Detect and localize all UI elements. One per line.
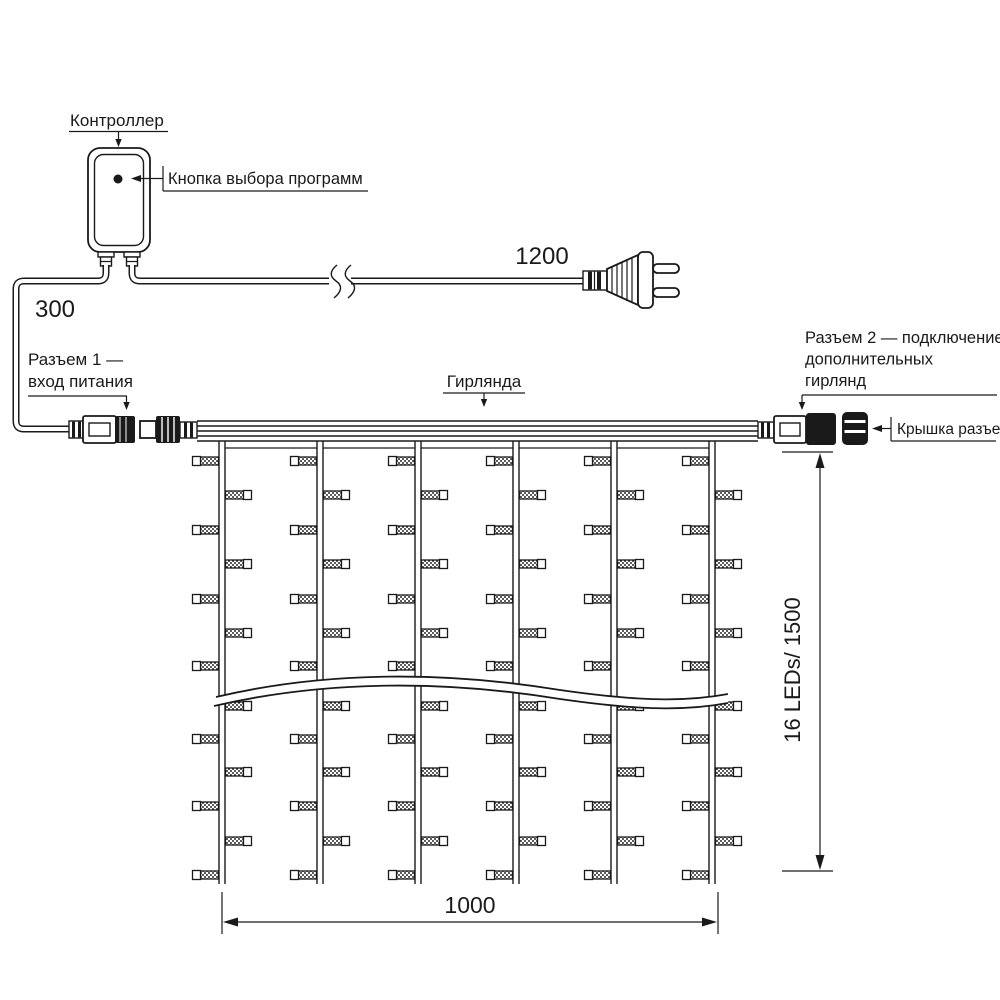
led-lamp-cap	[389, 735, 397, 744]
controller-box	[88, 148, 150, 266]
led-lamp-body	[495, 871, 513, 879]
led-lamp-body	[593, 735, 611, 743]
led-lamp-cap	[193, 595, 201, 604]
controller-stub-left	[98, 252, 114, 266]
led-lamp-cap	[734, 560, 742, 569]
controller-cord-length-label: 300	[35, 296, 75, 323]
led-lamp-cap	[683, 526, 691, 535]
width-dimension: 1000	[222, 892, 718, 934]
led-lamp-body	[691, 457, 709, 465]
led-lamp-body	[397, 595, 415, 603]
led-lamp-body	[226, 837, 244, 845]
led-lamp-body	[422, 768, 440, 776]
led-lamp-cap	[734, 702, 742, 711]
power-plug	[583, 252, 679, 308]
led-lamp-cap	[538, 629, 546, 638]
plug-body	[607, 255, 638, 305]
led-lamp-body	[618, 560, 636, 568]
led-lamp-cap	[244, 560, 252, 569]
led-lamp-cap	[538, 768, 546, 777]
led-lamp-body	[495, 735, 513, 743]
led-lamp-cap	[585, 595, 593, 604]
width-dimension-value: 1000	[444, 892, 495, 918]
garland-wire-bundle	[197, 421, 758, 441]
led-lamp-cap	[487, 871, 495, 880]
led-lamp-body	[226, 768, 244, 776]
connector-cap-label-text: Крышка разъема	[897, 421, 1000, 438]
led-lamp-body	[397, 735, 415, 743]
led-lamp-body	[716, 768, 734, 776]
led-lamp-body	[226, 629, 244, 637]
connector2-label-line3: гирлянд	[805, 372, 867, 390]
led-lamp-cap	[538, 560, 546, 569]
led-lamp-cap	[734, 837, 742, 846]
led-lamp-cap	[683, 871, 691, 880]
led-lamp-body	[691, 735, 709, 743]
led-lamp-body	[520, 491, 538, 499]
led-lamp-cap	[487, 457, 495, 466]
led-lamp-cap	[389, 457, 397, 466]
led-lamp-body	[422, 560, 440, 568]
cord-break-mark	[331, 265, 354, 298]
led-lamp-body	[201, 526, 219, 534]
led-lamp-cap	[440, 702, 448, 711]
led-lamp-body	[324, 837, 342, 845]
led-lamp-cap	[389, 526, 397, 535]
connector2	[758, 413, 836, 445]
led-lamp-cap	[193, 526, 201, 535]
led-lamp-cap	[585, 526, 593, 535]
led-lamp-cap	[636, 768, 644, 777]
led-lamp-body	[691, 595, 709, 603]
led-lamp-body	[593, 526, 611, 534]
connector1-female	[140, 416, 197, 443]
led-lamp-cap	[291, 871, 299, 880]
plug-face	[638, 252, 653, 308]
led-lamp-body	[691, 802, 709, 810]
led-lamp-body	[299, 871, 317, 879]
program-button-label-text: Кнопка выбора программ	[168, 170, 363, 188]
led-lamp-cap	[440, 837, 448, 846]
led-lamp-cap	[244, 837, 252, 846]
led-lamp-body	[495, 802, 513, 810]
connector1-label-line1: Разъем 1 —	[28, 350, 123, 369]
led-lamp-body	[618, 491, 636, 499]
led-lamp-body	[299, 735, 317, 743]
led-lamp-cap	[487, 595, 495, 604]
led-lamp-cap	[244, 702, 252, 711]
led-lamp-body	[520, 837, 538, 845]
led-lamp-body	[422, 702, 440, 710]
led-lamp-cap	[389, 662, 397, 671]
garland-diagram: 1000 16 LEDs/ 1500 Контроллер Кнопка выб…	[0, 0, 1000, 1000]
led-lamp-body	[495, 595, 513, 603]
controller-stub-right	[124, 252, 140, 266]
led-lamp-cap	[291, 595, 299, 604]
led-lamp-cap	[440, 560, 448, 569]
led-lamp-cap	[636, 837, 644, 846]
led-lamp-cap	[342, 560, 350, 569]
led-lamp-cap	[538, 491, 546, 500]
controller-to-connector1-wire	[16, 265, 106, 429]
led-lamp-body	[520, 768, 538, 776]
led-lamp-cap	[636, 629, 644, 638]
curtain-break-wave	[214, 677, 728, 709]
led-lamp-cap	[683, 595, 691, 604]
led-lamp-cap	[389, 871, 397, 880]
connector1-label-line2: вход питания	[28, 372, 133, 391]
led-lamp-body	[422, 837, 440, 845]
led-lamp-body	[299, 662, 317, 670]
led-lamp-cap	[440, 491, 448, 500]
led-lamp-cap	[342, 629, 350, 638]
led-lamp-body	[495, 457, 513, 465]
led-lamp-body	[324, 768, 342, 776]
plug-prong-bottom	[653, 288, 679, 297]
led-lamp-cap	[291, 526, 299, 535]
led-lamp-body	[324, 560, 342, 568]
height-dimension: 16 LEDs/ 1500	[780, 452, 833, 871]
connector2-cap	[842, 412, 868, 445]
led-lamp-body	[324, 629, 342, 637]
height-dimension-value: 16 LEDs/ 1500	[780, 597, 805, 743]
led-lamp-cap	[538, 837, 546, 846]
led-lamp-body	[716, 560, 734, 568]
led-lamp-body	[397, 802, 415, 810]
led-lamp-cap	[291, 457, 299, 466]
led-lamp-body	[593, 595, 611, 603]
led-lamp-cap	[440, 768, 448, 777]
led-lamp-body	[520, 629, 538, 637]
led-lamp-cap	[734, 768, 742, 777]
led-lamp-body	[593, 802, 611, 810]
led-lamp-body	[299, 802, 317, 810]
diagram-canvas: 1000 16 LEDs/ 1500 Контроллер Кнопка выб…	[0, 0, 1000, 1000]
led-lamp-body	[397, 871, 415, 879]
led-lamp-body	[495, 526, 513, 534]
connector1-male	[69, 416, 135, 443]
led-lamp-cap	[244, 629, 252, 638]
plug-prong-top	[653, 264, 679, 273]
led-lamp-body	[520, 702, 538, 710]
led-lamp-cap	[538, 702, 546, 711]
led-lamp-body	[201, 457, 219, 465]
led-lamp-body	[201, 871, 219, 879]
led-lamp-body	[618, 768, 636, 776]
led-lamp-body	[618, 629, 636, 637]
led-lamp-cap	[244, 491, 252, 500]
led-lamp-cap	[585, 871, 593, 880]
led-lamp-body	[299, 457, 317, 465]
program-button-label: Кнопка выбора программ	[131, 166, 368, 191]
led-lamp-cap	[342, 837, 350, 846]
led-lamp-cap	[636, 491, 644, 500]
led-lamp-cap	[291, 735, 299, 744]
led-lamp-cap	[585, 735, 593, 744]
led-lamp-cap	[193, 735, 201, 744]
garland-label: Гирлянда	[443, 372, 525, 407]
led-lamp-cap	[487, 802, 495, 811]
led-lamp-cap	[683, 457, 691, 466]
led-lamp-body	[716, 837, 734, 845]
led-lamp-cap	[734, 491, 742, 500]
led-lamp-body	[691, 526, 709, 534]
led-lamp-body	[593, 457, 611, 465]
led-lamp-cap	[244, 768, 252, 777]
controller-label-text: Контроллер	[70, 111, 164, 130]
connector-cap-label: Крышка разъема	[872, 417, 1000, 441]
led-lamp-body	[716, 629, 734, 637]
led-lamp-body	[201, 662, 219, 670]
led-lamp-body	[495, 662, 513, 670]
led-lamp-cap	[291, 662, 299, 671]
led-lamp-cap	[487, 735, 495, 744]
led-lamp-body	[618, 837, 636, 845]
led-lamp-body	[201, 735, 219, 743]
led-lamp-cap	[342, 491, 350, 500]
plug-strain-relief	[583, 271, 607, 290]
led-lamp-body	[716, 491, 734, 499]
led-lamp-body	[324, 702, 342, 710]
led-lamp-body	[201, 802, 219, 810]
connector2-label-line2: дополнительных	[805, 351, 934, 369]
led-lamp-body	[397, 457, 415, 465]
led-lamp-body	[299, 595, 317, 603]
led-lamp-cap	[291, 802, 299, 811]
led-lamp-cap	[193, 871, 201, 880]
garland-label-text: Гирлянда	[447, 372, 522, 391]
led-lamp-cap	[585, 662, 593, 671]
led-lamp-cap	[193, 457, 201, 466]
led-lamp-cap	[342, 702, 350, 711]
led-lamp-cap	[585, 802, 593, 811]
led-lamp-cap	[585, 457, 593, 466]
led-lamp-cap	[193, 662, 201, 671]
power-cord-length-label: 1200	[515, 243, 568, 270]
led-lamp-body	[422, 491, 440, 499]
led-lamp-cap	[389, 802, 397, 811]
led-lamp-body	[593, 662, 611, 670]
led-lamp-body	[226, 491, 244, 499]
led-lamp-body	[691, 871, 709, 879]
led-lamp-cap	[440, 629, 448, 638]
led-lamp-body	[593, 871, 611, 879]
led-lamp-body	[422, 629, 440, 637]
led-lamp-cap	[193, 802, 201, 811]
led-lamp-body	[397, 526, 415, 534]
led-lamp-cap	[683, 735, 691, 744]
led-lamp-body	[299, 526, 317, 534]
led-curtain	[193, 441, 742, 884]
connector2-label-line1: Разъем 2 — подключение	[805, 329, 1000, 347]
led-lamp-body	[201, 595, 219, 603]
led-lamp-cap	[389, 595, 397, 604]
connector2-label: Разъем 2 — подключение дополнительных ги…	[799, 329, 1000, 410]
led-lamp-body	[397, 662, 415, 670]
program-select-button-dot	[114, 175, 123, 184]
led-lamp-cap	[734, 629, 742, 638]
led-lamp-body	[226, 560, 244, 568]
led-lamp-cap	[683, 662, 691, 671]
led-lamp-cap	[487, 526, 495, 535]
led-lamp-body	[324, 491, 342, 499]
led-lamp-body	[520, 560, 538, 568]
led-lamp-body	[691, 662, 709, 670]
led-lamp-cap	[636, 560, 644, 569]
led-lamp-cap	[683, 802, 691, 811]
led-lamp-cap	[342, 768, 350, 777]
controller-label: Контроллер	[69, 111, 168, 147]
led-lamp-cap	[487, 662, 495, 671]
connector1-label: Разъем 1 — вход питания	[28, 350, 133, 410]
